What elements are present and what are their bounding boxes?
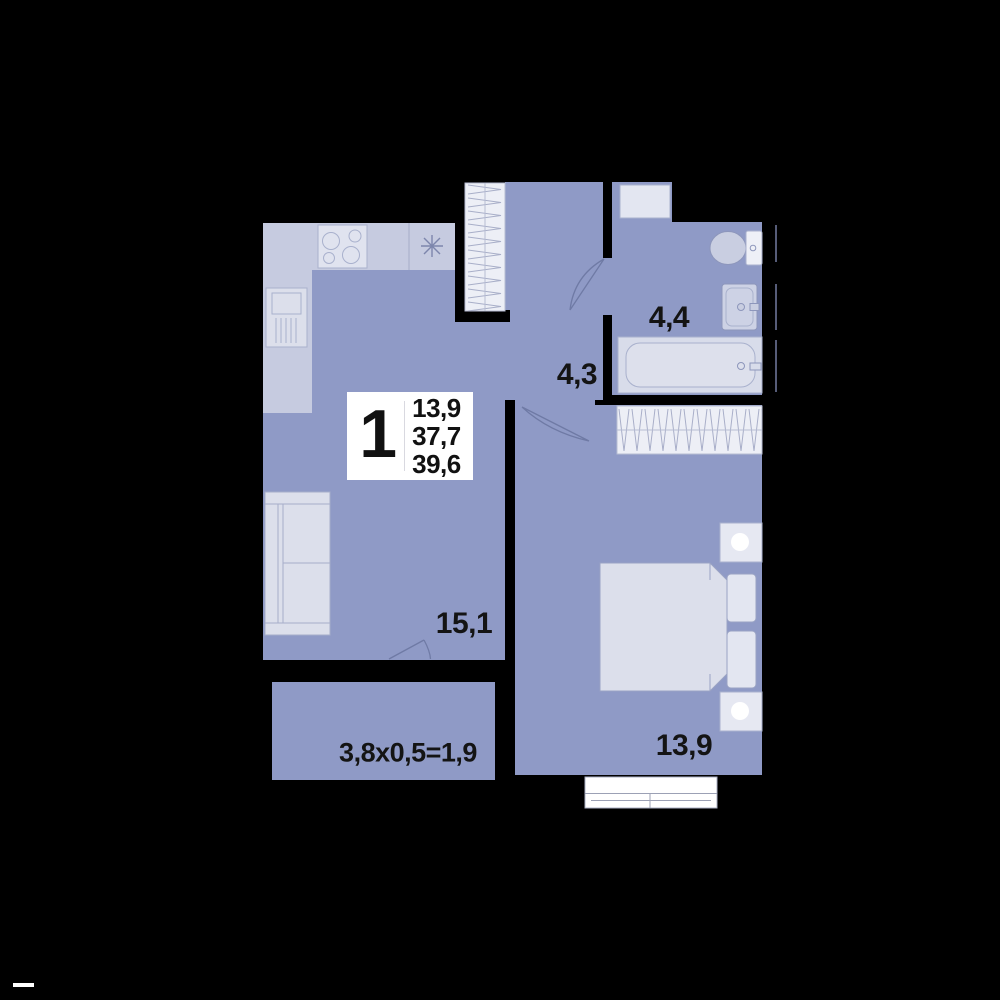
living-area-value: 13,9 [412,394,461,422]
room-area-label-hallway: 4,3 [557,358,597,392]
stray-mark [13,983,34,987]
room-area-label-bedroom: 13,9 [656,729,712,763]
nightstand-icon [720,523,762,562]
bathtub-icon [618,337,762,393]
bedroom-wardrobe-icon [617,406,762,454]
area-list: 13,9 37,7 39,6 [412,394,461,478]
nightstand-icon [720,692,762,731]
pillow-icon [727,574,756,622]
sofa-icon [265,492,330,635]
window-icon [585,777,717,808]
bathroom-door-opening [603,258,612,315]
sink-cabinet-icon [266,288,307,347]
balcony-area-label: 3,8x0,5=1,9 [339,738,477,769]
kitchen-sink-icon [421,235,443,257]
floor-plan-drawing [0,0,1000,1000]
apartment-info-box: 1 13,9 37,7 39,6 [347,392,473,480]
apartment-area-value: 37,7 [412,422,461,450]
wall-under-wardrobe [455,310,510,322]
washing-machine-icon [620,185,670,218]
pillow-icon [727,631,756,688]
wardrobe-icon [465,183,505,311]
room-count: 1 [359,400,397,468]
info-divider [404,401,405,471]
room-area-label-bathroom: 4,4 [649,301,689,335]
total-area-value: 39,6 [412,450,461,478]
stove-icon [318,225,367,268]
toilet-icon [710,231,762,265]
floor-plan-canvas: 15,1 4,3 4,4 13,9 3,8x0,5=1,9 1 13,9 37,… [0,0,1000,1000]
room-area-label-kitchen-living: 15,1 [436,607,492,641]
washbasin-icon [722,284,759,330]
